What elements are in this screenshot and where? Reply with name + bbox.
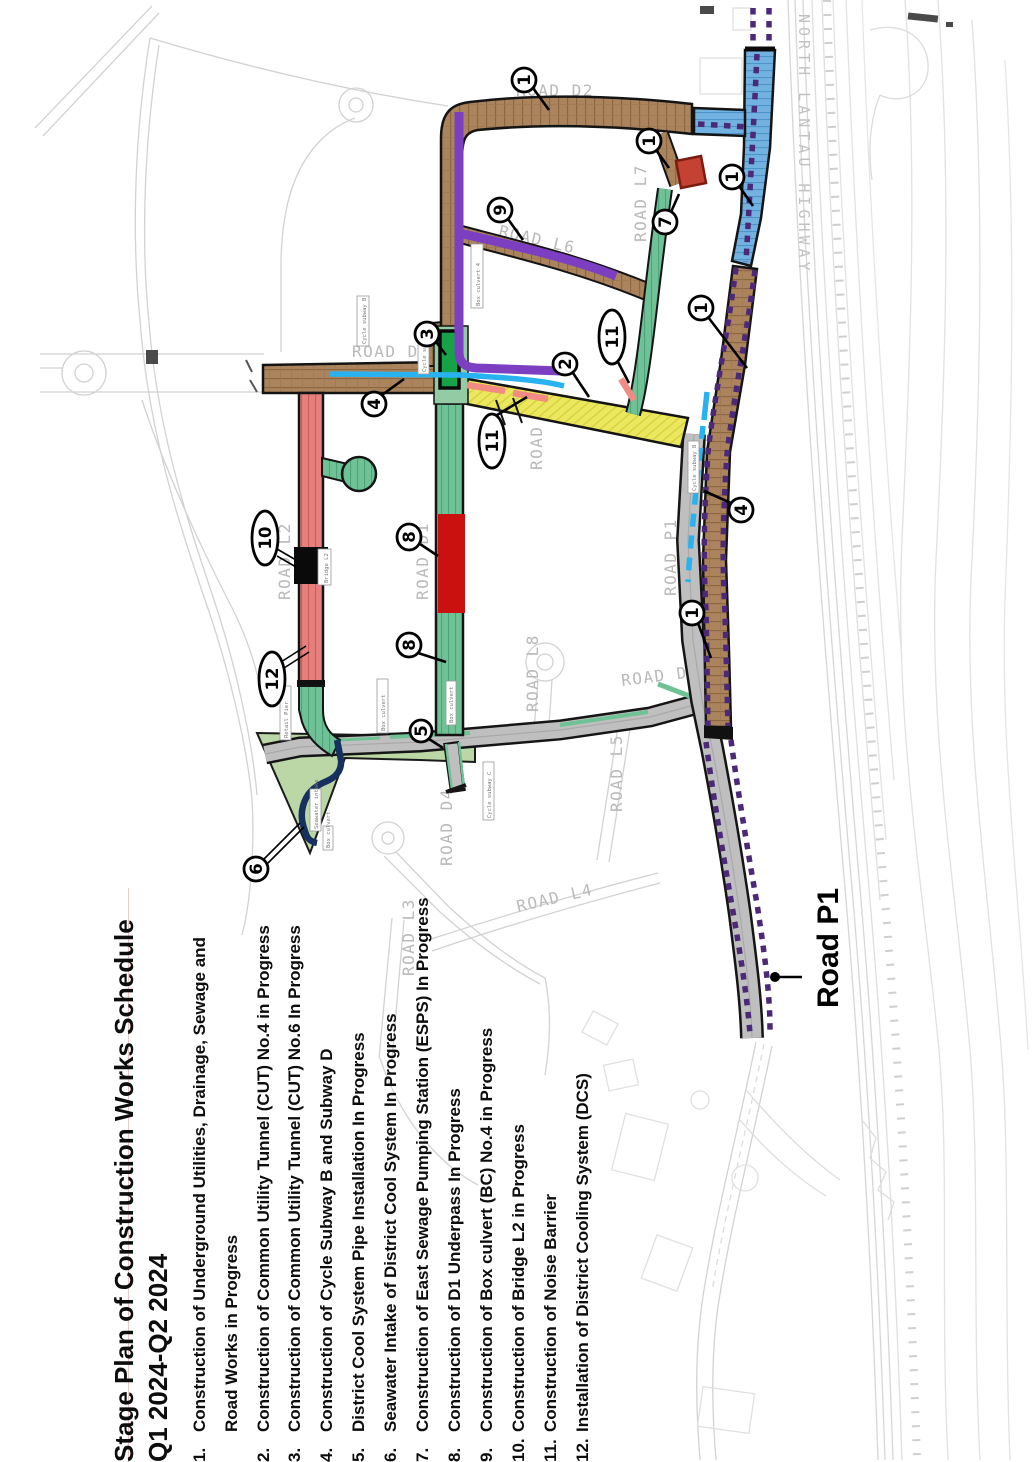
legend-item-3: 3.Construction of Common Utility Tunnel … [279,894,311,1462]
micro-label-box-culvert-3: Box culvert [326,812,332,848]
svg-text:11: 11 [483,430,502,453]
micro-label-seawater-intake: Seawater intake [314,779,320,829]
micro-label-retail-pier: Retail Pier [284,701,290,738]
legend-item-2: 2.Construction of Common Utility Tunnel … [248,894,280,1462]
road-label-l8: ROAD L8 [523,634,542,712]
road-label-north-lantau-highway: NORTH LANTAU HIGHWAY [795,14,813,275]
micro-label-bridge-l2: Bridge L2 [324,553,330,583]
legend-item-4: 4.Construction of Cycle Subway B and Sub… [311,894,343,1462]
callout-4-p1: 4 [729,498,753,522]
svg-text:6: 6 [247,863,266,874]
svg-text:9: 9 [491,204,510,215]
legend-item-9: 9.Construction of Box culvert (BC) No.4 … [471,894,503,1462]
road-label-l7: ROAD L7 [631,164,650,242]
legend-item-5: 5.District Cool System Pipe Installation… [343,894,375,1462]
micro-label-box-culvert-4: Box culvert 4 [476,262,482,306]
esps-block [676,156,706,188]
callout-8-road: 8 [397,633,421,657]
svg-text:1: 1 [692,302,711,313]
callout-1-road-d2: 1 [512,68,536,92]
callout-11-l9: 11 [479,414,505,468]
callout-1-esps-stub: 1 [637,129,661,153]
page-title-line1: Stage Plan of Construction Works Schedul… [108,894,142,1462]
callout-7: 7 [653,210,677,234]
svg-text:1: 1 [723,171,742,182]
construction-stage-plan-page: ROAD D2 ROAD L6 ROAD D3 ROAD L7 ROAD L2 … [0,0,1034,1462]
callout-1-p1: 1 [680,601,704,625]
legend: Stage Plan of Construction Works Schedul… [108,894,620,1462]
legend-item-12: 12.Installation of District Cooling Syst… [567,894,599,1462]
callout-10: 10 [252,511,278,565]
svg-text:11: 11 [603,326,622,349]
svg-text:7: 7 [656,216,675,227]
legend-item-11: 11.Construction of Noise Barrier [535,894,567,1462]
legend-item-8: 8.Construction of D1 Underpass In Progre… [439,894,471,1462]
micro-label-cycle-subway-c: Cycle subway C [487,772,493,818]
callout-1-blue-road: 1 [720,165,744,189]
svg-text:3: 3 [418,328,437,339]
callout-12: 12 [259,652,285,706]
callout-8-block: 8 [397,524,421,550]
callout-9: 9 [488,198,512,222]
callout-11-l7: 11 [599,310,625,364]
micro-label-cycle-subway-b: Cycle subway B [362,297,368,344]
svg-text:5: 5 [412,725,431,736]
svg-text:1: 1 [640,135,659,146]
svg-text:4: 4 [732,504,751,515]
d1-underpass-works-block [438,514,465,613]
micro-label-cycle-subway-b3: Cycle subway B [692,444,698,491]
svg-text:1: 1 [515,74,534,85]
svg-text:1: 1 [683,607,702,618]
road-label-d4: ROAD D4 [437,788,456,866]
legend-item-10: 10.Construction of Bridge L2 in Progress [503,894,535,1462]
svg-text:4: 4 [365,398,384,409]
svg-text:10: 10 [256,527,275,550]
road-label-l5: ROAD L5 [607,734,626,812]
page-title-line2: Q1 2024-Q2 2024 [142,894,176,1462]
svg-text:2: 2 [556,358,575,369]
micro-label-box-culvert-1: Box culvert [381,695,387,731]
callout-3: 3 [415,322,439,346]
svg-text:12: 12 [263,668,282,691]
legend-item-6: 6.Seawater Intake of District Cool Syste… [375,894,407,1462]
page-title: Stage Plan of Construction Works Schedul… [108,894,176,1462]
callout-6: 6 [244,857,268,881]
legend-items: 1.Construction of Underground Utilities,… [184,894,599,1462]
legend-item-1: 1.Construction of Underground Utilities,… [184,894,248,1462]
road-p1-annotation: Road P1 [770,888,845,1008]
legend-item-7: 7.Construction of East Sewage Pumping St… [407,894,439,1462]
micro-label-box-culvert-2: Box culvert [449,687,455,723]
road-blue [694,49,775,266]
road-p1-label: Road P1 [812,888,845,1008]
svg-text:8: 8 [400,639,419,650]
callout-4-d3: 4 [362,392,386,416]
svg-text:8: 8 [400,531,419,542]
callout-5: 5 [410,720,432,742]
callout-1-corridor: 1 [689,296,713,320]
callout-2: 2 [553,353,577,375]
